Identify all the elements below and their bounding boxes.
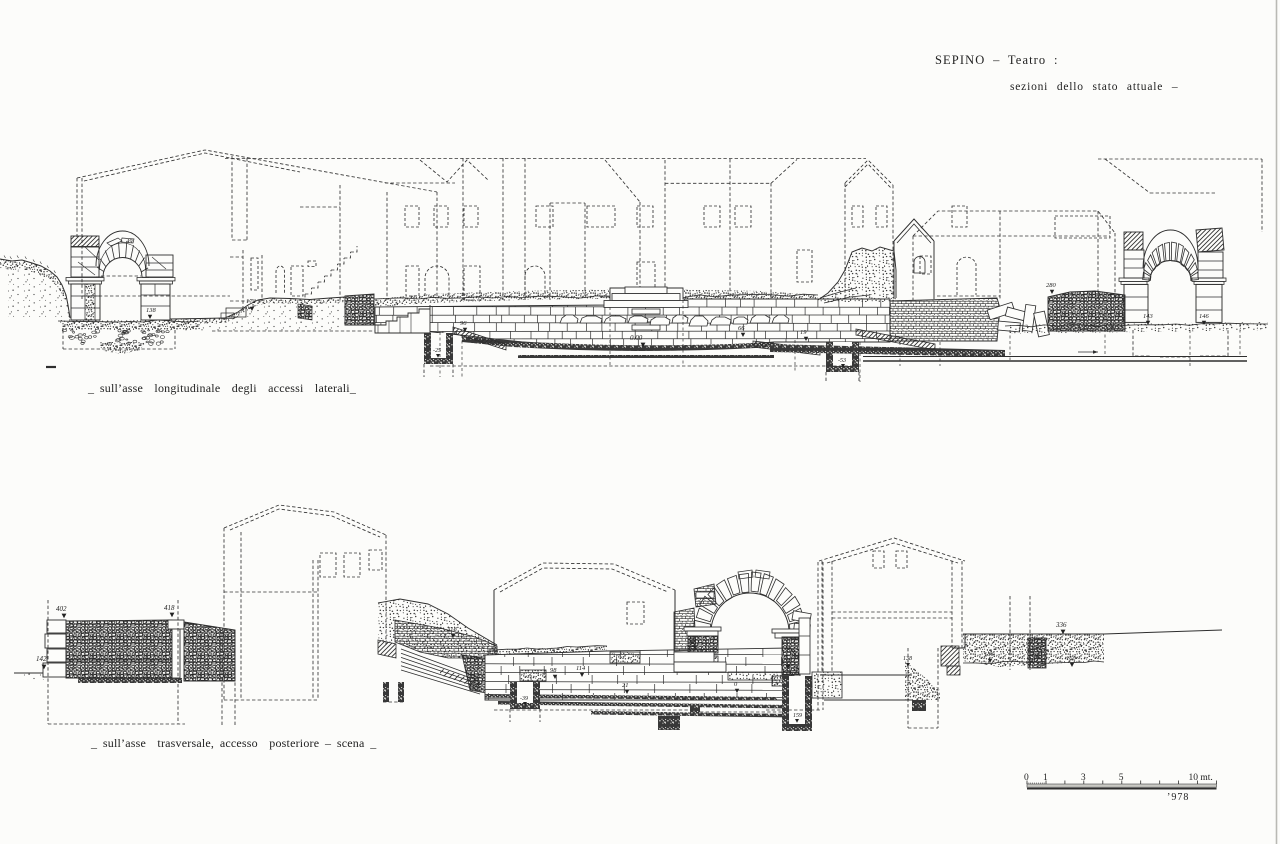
svg-text:_ sull’asse longitudinale de: _ sull’asse longitudinale degli accessi … [87,381,357,395]
svg-text:5: 5 [1119,773,1124,783]
svg-text:’978: ’978 [1167,792,1189,803]
svg-text:sezioni dello stato attuale –: sezioni dello stato attuale – [1010,81,1178,93]
svg-text:114: 114 [576,665,586,672]
svg-text:66: 66 [738,325,745,332]
svg-text:96: 96 [460,320,467,327]
svg-text:138: 138 [146,307,157,314]
svg-text:98: 98 [550,667,557,674]
svg-text:160: 160 [1066,655,1077,662]
svg-text:280: 280 [1046,282,1057,289]
svg-text:-53: -53 [838,358,846,364]
svg-text:159: 159 [793,713,802,719]
svg-text:402: 402 [56,605,67,613]
svg-text:3: 3 [1081,773,1086,783]
svg-text:-78: -78 [783,658,791,664]
svg-text:10 mt.: 10 mt. [1189,773,1213,783]
svg-text:142: 142 [36,655,47,663]
svg-text:172: 172 [246,298,257,305]
svg-text:143: 143 [1143,313,1154,320]
svg-text:21: 21 [622,682,629,689]
svg-text:1: 1 [1043,773,1048,783]
svg-text:318: 318 [446,626,458,633]
svg-text:418: 418 [164,604,175,612]
svg-text:SEPINO – Teatro :: SEPINO – Teatro : [935,53,1059,67]
svg-text:138: 138 [903,656,912,662]
svg-text:_ sull’asse trasversale, acce: _ sull’asse trasversale, accesso posteri… [90,736,377,750]
svg-text:49: 49 [126,238,133,245]
svg-text:0: 0 [1024,773,1029,783]
svg-text:-39: -39 [520,696,528,702]
svg-text:146: 146 [1199,313,1210,320]
svg-text:336: 336 [1055,621,1067,629]
svg-text:19: 19 [800,329,807,336]
svg-text:0.00: 0.00 [630,334,643,342]
svg-text:186: 186 [984,651,995,658]
